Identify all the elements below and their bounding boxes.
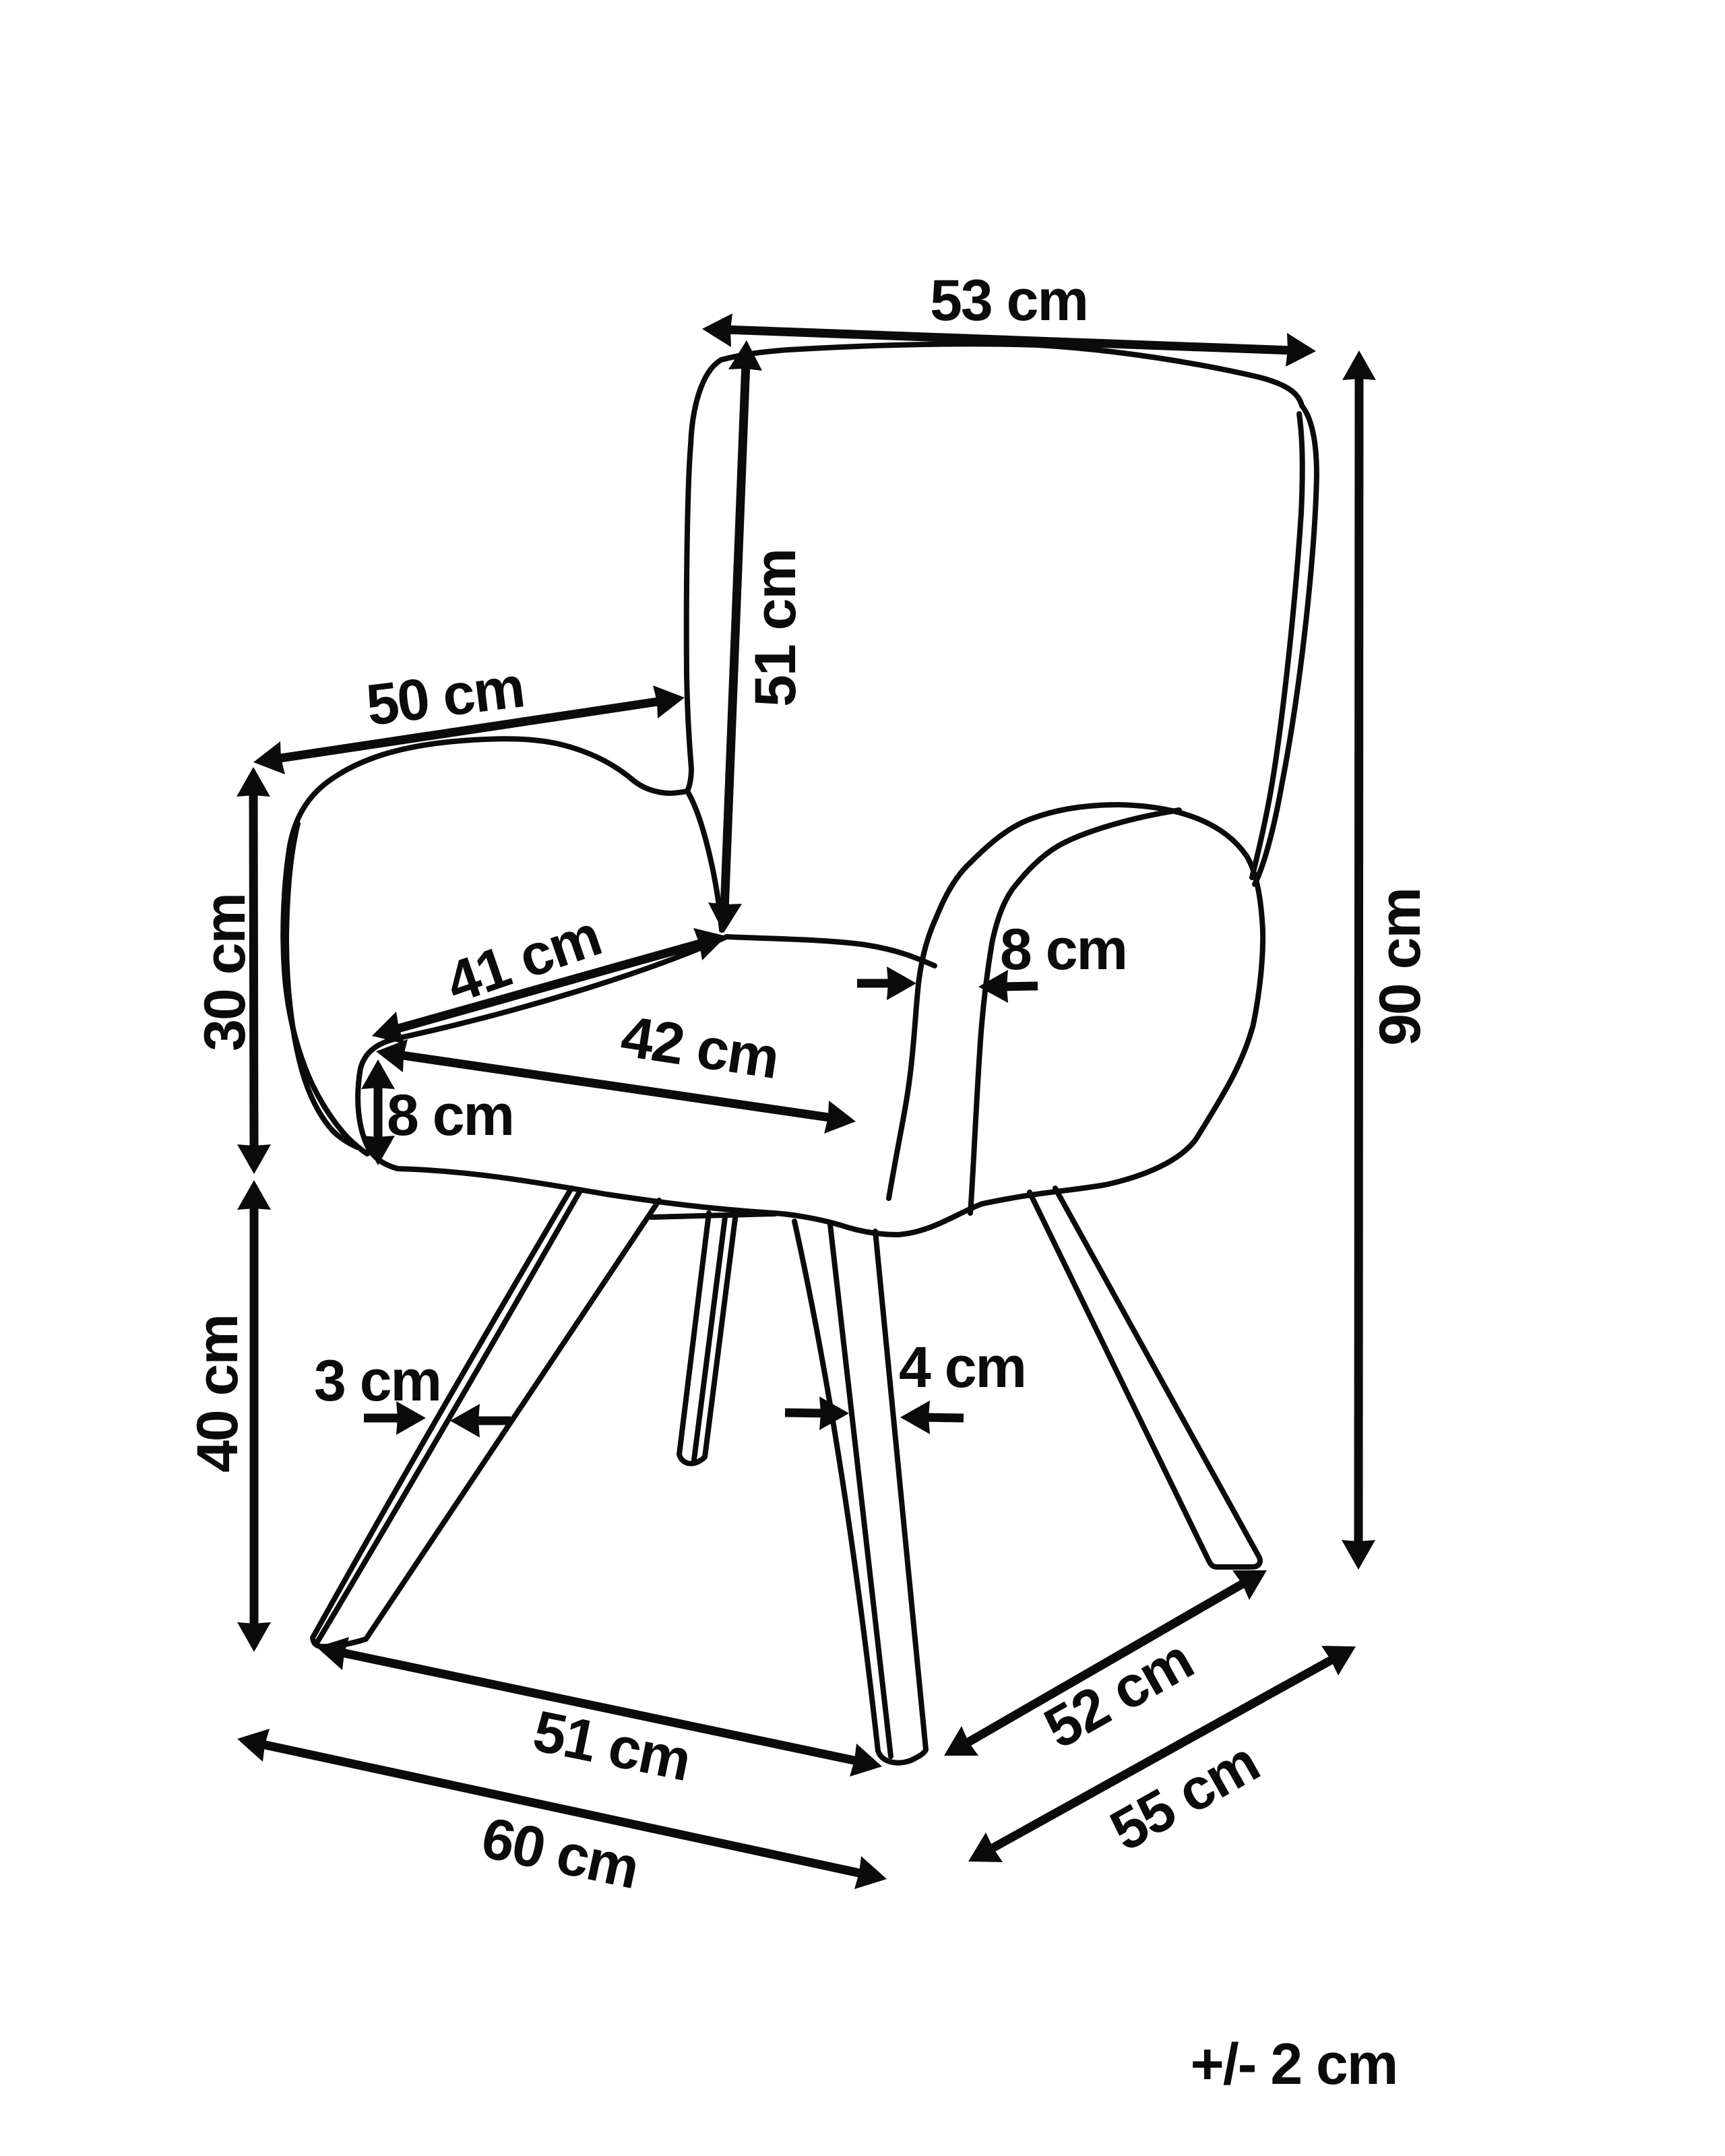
svg-text:53 cm: 53 cm	[930, 268, 1088, 333]
svg-text:+/- 2 cm: +/- 2 cm	[1191, 2032, 1398, 2097]
svg-text:40 cm: 40 cm	[185, 1315, 250, 1473]
svg-text:3 cm: 3 cm	[314, 1349, 441, 1413]
svg-text:8 cm: 8 cm	[387, 1083, 513, 1148]
svg-text:51 cm: 51 cm	[743, 549, 808, 707]
svg-text:90 cm: 90 cm	[1368, 888, 1433, 1046]
svg-text:30 cm: 30 cm	[193, 894, 257, 1051]
svg-text:4 cm: 4 cm	[899, 1335, 1026, 1400]
svg-text:8 cm: 8 cm	[1000, 917, 1127, 982]
